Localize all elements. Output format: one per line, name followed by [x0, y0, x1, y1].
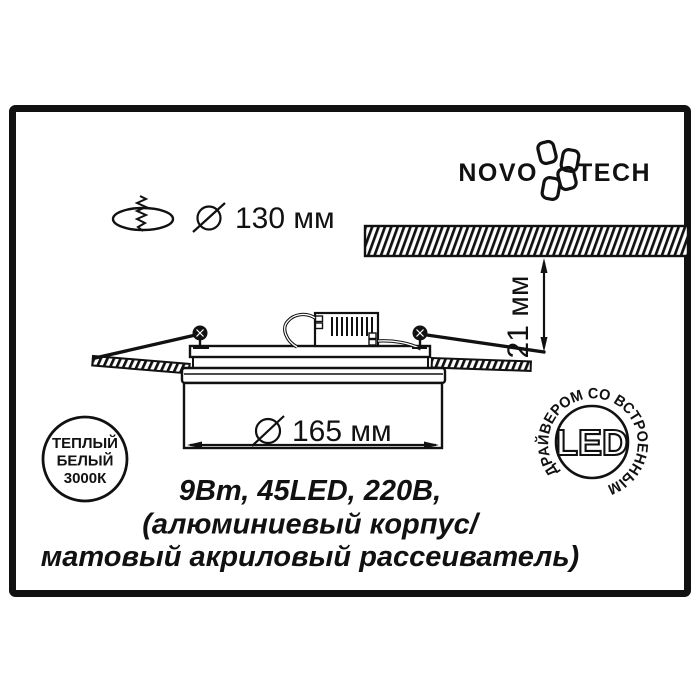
badge-line-2: БЕЛЫЙ — [57, 452, 114, 470]
logo-text-tech: TECH — [577, 159, 651, 187]
badge-line-3: 3000К — [64, 470, 107, 487]
spec-line-1: 9Вт, 45LED, 220В, — [179, 475, 441, 507]
led-stamp-label: LED — [556, 422, 628, 463]
diagram-svg: NOVO TECH 130 мм 21 мм — [0, 0, 700, 700]
trim-bezel — [182, 368, 445, 383]
ceiling-strip-right — [432, 358, 531, 371]
cutout-diameter-label: 130 мм — [235, 202, 335, 235]
spec-line-2: (алюминиевый корпус/ — [142, 509, 481, 541]
color-temp-badge: ТЕПЛЫЙ БЕЛЫЙ 3000К — [43, 417, 127, 501]
mounting-plate — [190, 346, 430, 357]
logo-text-novo: NOVO — [458, 159, 538, 187]
badge-line-1: ТЕПЛЫЙ — [52, 434, 118, 452]
spec-sheet: NOVO TECH 130 мм 21 мм — [0, 0, 700, 700]
spec-line-3: матовый акриловый рассеиватель) — [41, 541, 579, 573]
driver-grille — [332, 317, 372, 336]
ceiling-section-bar — [365, 226, 688, 256]
fixture-diameter-label: 165 мм — [292, 415, 392, 448]
led-driver-box — [315, 313, 378, 346]
